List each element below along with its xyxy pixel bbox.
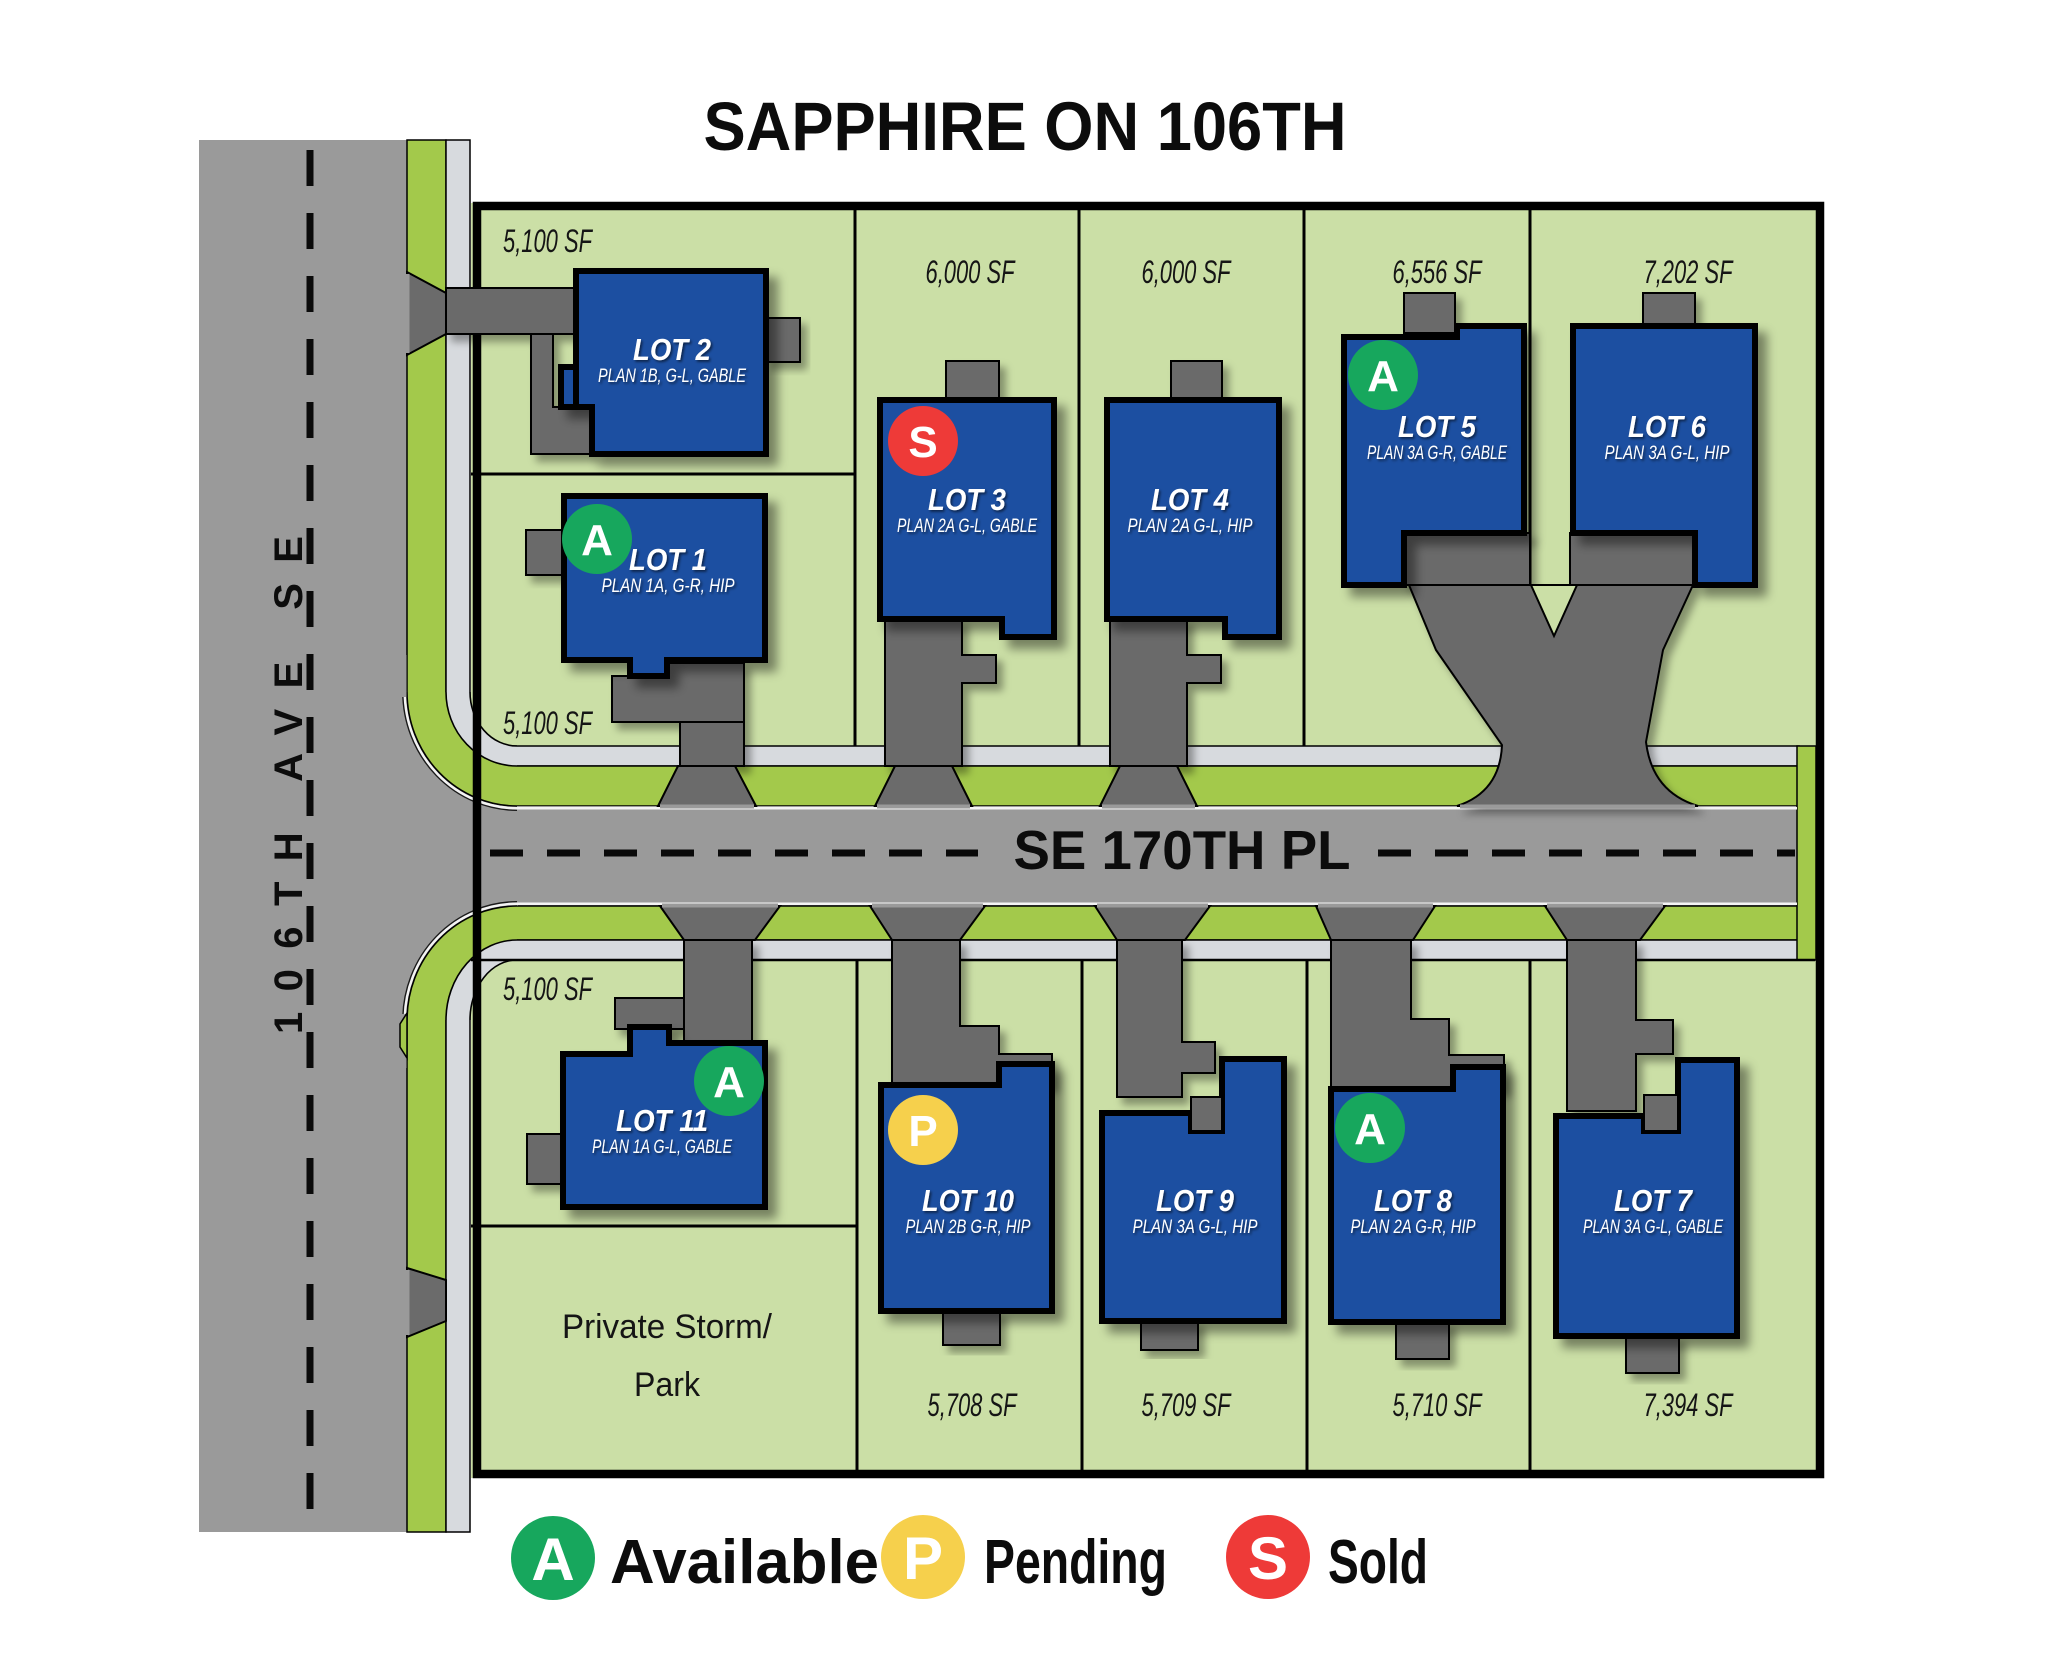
svg-text:PLAN 3A G-L, HIP: PLAN 3A G-L, HIP [1133, 1217, 1258, 1238]
svg-text:6,556 SF: 6,556 SF [1393, 254, 1484, 290]
svg-text:5,100 SF: 5,100 SF [503, 223, 594, 259]
svg-text:SAPPHIRE ON 106TH: SAPPHIRE ON 106TH [704, 88, 1347, 165]
svg-text:SE 170TH PL: SE 170TH PL [1014, 819, 1351, 881]
svg-text:PLAN 2B G-R, HIP: PLAN 2B G-R, HIP [906, 1217, 1031, 1238]
svg-text:5,709 SF: 5,709 SF [1142, 1387, 1233, 1423]
svg-text:A: A [581, 516, 613, 565]
svg-text:Sold: Sold [1328, 1528, 1428, 1597]
svg-text:LOT 3: LOT 3 [928, 482, 1006, 517]
svg-text:LOT 10: LOT 10 [922, 1183, 1014, 1218]
svg-text:PLAN 2A G-L, GABLE: PLAN 2A G-L, GABLE [897, 516, 1037, 537]
svg-text:PLAN 3A G-L, HIP: PLAN 3A G-L, HIP [1605, 443, 1730, 464]
svg-text:Available: Available [610, 1528, 879, 1597]
svg-text:6,000 SF: 6,000 SF [926, 254, 1017, 290]
svg-text:A: A [1354, 1105, 1386, 1154]
svg-text:P: P [908, 1107, 937, 1156]
svg-text:LOT 2: LOT 2 [633, 332, 711, 367]
svg-text:PLAN 1A, G-R, HIP: PLAN 1A, G-R, HIP [602, 576, 735, 597]
svg-text:A: A [1367, 352, 1399, 401]
svg-text:7,202 SF: 7,202 SF [1644, 254, 1735, 290]
svg-text:LOT 1: LOT 1 [629, 542, 707, 577]
svg-text:PLAN 3A G-L, GABLE: PLAN 3A G-L, GABLE [1583, 1217, 1723, 1238]
svg-text:5,710 SF: 5,710 SF [1393, 1387, 1484, 1423]
svg-text:PLAN 1B, G-L, GABLE: PLAN 1B, G-L, GABLE [598, 366, 746, 387]
svg-text:7,394 SF: 7,394 SF [1644, 1387, 1735, 1423]
svg-text:PLAN 2A G-L, HIP: PLAN 2A G-L, HIP [1128, 516, 1253, 537]
svg-text:Park: Park [634, 1366, 701, 1404]
svg-text:P: P [903, 1525, 943, 1592]
svg-text:PLAN 3A G-R, GABLE: PLAN 3A G-R, GABLE [1367, 443, 1507, 464]
svg-text:5,100 SF: 5,100 SF [503, 971, 594, 1007]
svg-text:S: S [908, 418, 937, 467]
svg-text:A: A [713, 1058, 745, 1107]
svg-text:LOT 7: LOT 7 [1614, 1183, 1694, 1218]
svg-text:PLAN 1A G-L, GABLE: PLAN 1A G-L, GABLE [592, 1137, 732, 1158]
svg-text:PLAN 2A G-R, HIP: PLAN 2A G-R, HIP [1351, 1217, 1476, 1238]
svg-text:Private Storm/: Private Storm/ [562, 1308, 773, 1346]
svg-text:S: S [1248, 1525, 1288, 1592]
svg-text:LOT 9: LOT 9 [1156, 1183, 1235, 1218]
svg-text:6,000 SF: 6,000 SF [1142, 254, 1233, 290]
svg-text:LOT 6: LOT 6 [1628, 409, 1707, 444]
svg-text:5,100 SF: 5,100 SF [503, 705, 594, 741]
svg-text:LOT 4: LOT 4 [1151, 482, 1229, 517]
svg-text:LOT 5: LOT 5 [1398, 409, 1477, 444]
svg-text:A: A [531, 1526, 574, 1593]
svg-text:LOT 8: LOT 8 [1374, 1183, 1453, 1218]
svg-text:5,708 SF: 5,708 SF [928, 1387, 1019, 1423]
svg-text:Pending: Pending [984, 1528, 1167, 1597]
svg-text:LOT 11: LOT 11 [616, 1103, 708, 1138]
